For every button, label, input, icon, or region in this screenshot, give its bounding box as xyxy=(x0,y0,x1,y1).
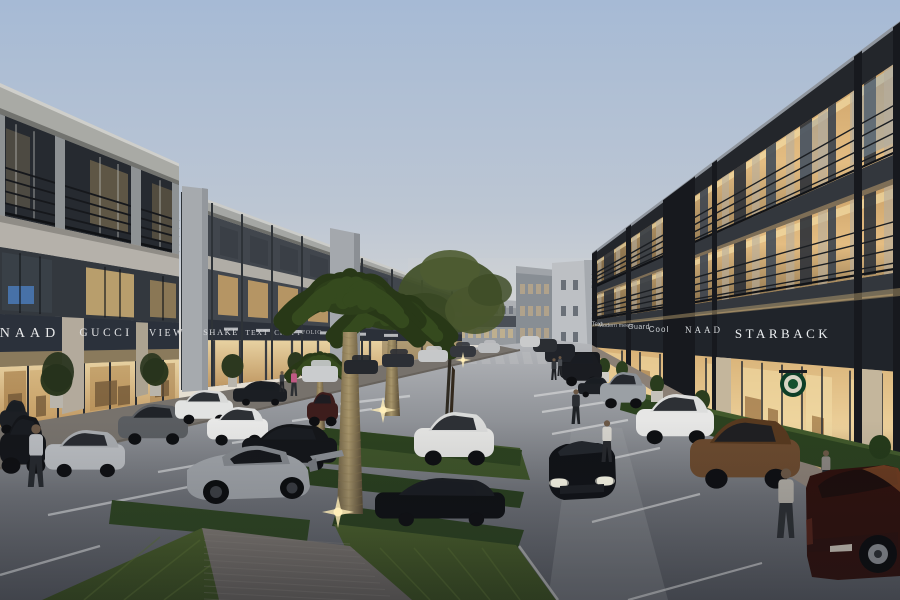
svg-text:STARBACK: STARBACK xyxy=(735,326,831,341)
svg-text:SHAKE: SHAKE xyxy=(203,327,239,337)
svg-text:TEXT: TEXT xyxy=(245,328,268,337)
svg-text:NAAD: NAAD xyxy=(685,325,723,335)
svg-text:Cool: Cool xyxy=(649,325,669,334)
svg-text:VIEW: VIEW xyxy=(149,328,185,339)
svg-text:FOLIO: FOLIO xyxy=(302,330,322,336)
svg-text:NAAD: NAAD xyxy=(0,326,60,341)
svg-text:GUCCI: GUCCI xyxy=(79,327,132,339)
svg-text:Text: Text xyxy=(591,322,602,328)
svg-text:Modern meets: Modern meets xyxy=(598,323,633,329)
